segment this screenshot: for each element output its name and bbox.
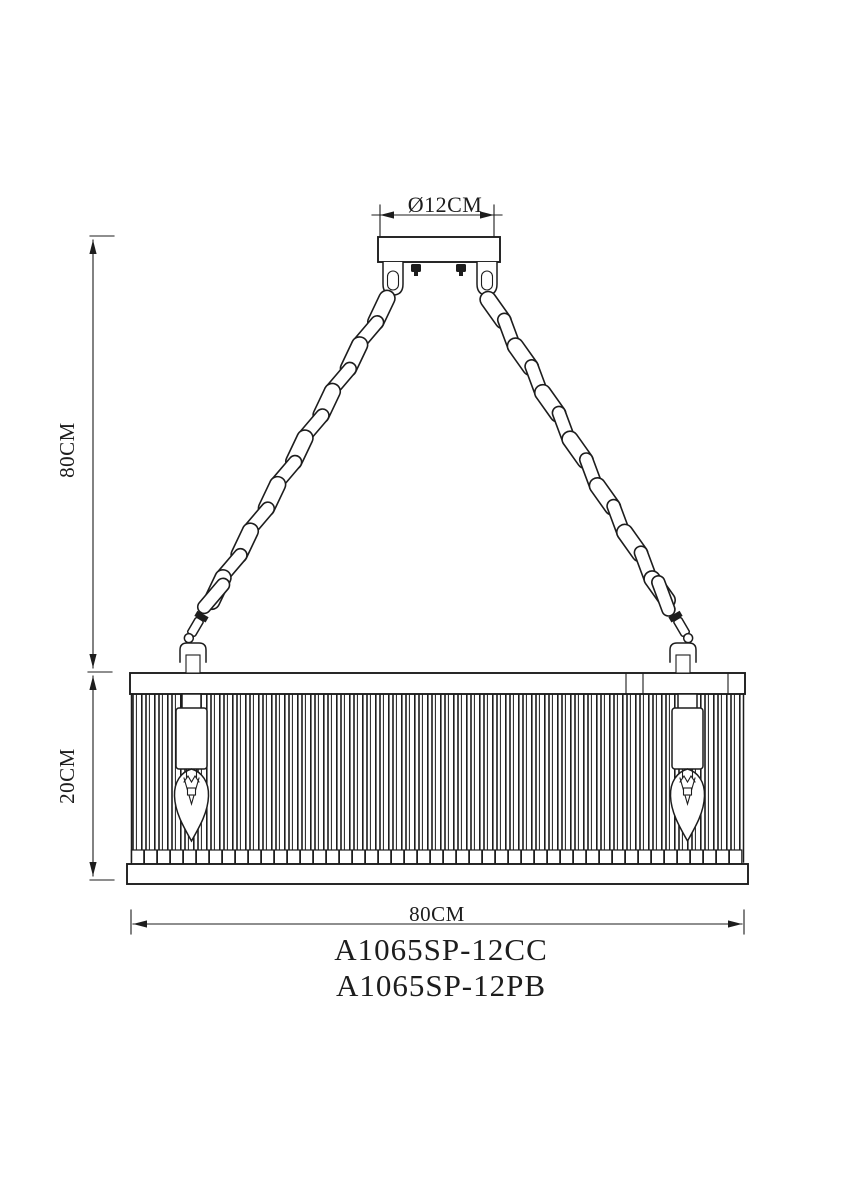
arrowhead [380,211,394,218]
slat-foot [222,850,234,864]
slat-foot [716,850,728,864]
slat-foot [469,850,481,864]
slat-foot [417,850,429,864]
chain-right [477,288,693,642]
slat-foot [170,850,182,864]
shade-width-label: 80CM [409,902,465,926]
slat-foot [482,850,494,864]
slat-foot [326,850,338,864]
slat-foot [612,850,624,864]
slat-foot [274,850,286,864]
slat-foot [521,850,533,864]
slat-foot [729,850,741,864]
chain-left [184,288,397,643]
arrowhead [89,240,96,254]
slat-foot [196,850,208,864]
slat-foot [209,850,221,864]
slat-foot [235,850,247,864]
slat-foot [573,850,585,864]
slat-foot [651,850,663,864]
screw-icon [411,264,421,276]
slat-foot [404,850,416,864]
slat-foot [703,850,715,864]
dimension-canopy-diameter: Ø12CM [372,192,502,237]
slat-foot [378,850,390,864]
slat-foot [391,850,403,864]
slat-foot [586,850,598,864]
slat-foot [352,850,364,864]
slat-foot [339,850,351,864]
lamp-socket [176,708,207,769]
screw-icon [456,264,466,276]
slat-foot [443,850,455,864]
arrowhead [133,920,147,927]
slat-foot [131,850,143,864]
bulb-assembly [670,694,704,841]
slat-foot [313,850,325,864]
bulb-assembly [174,694,208,841]
shade-height-label: 20CM [55,748,79,804]
slat-foot [261,850,273,864]
canopy-hanger [477,262,497,295]
slat-foot [599,850,611,864]
slat-foot [144,850,156,864]
slat-foot [560,850,572,864]
slat-foot [534,850,546,864]
slat-foot [508,850,520,864]
slat-foot [677,850,689,864]
dimension-shade-height: 20CM [55,672,114,880]
dimension-hang-height: 80CM [55,236,114,668]
slat-foot [157,850,169,864]
slat-foot [638,850,650,864]
arrowhead [89,654,96,668]
bulb-filament [188,788,196,795]
slat-foot [547,850,559,864]
model-number-line-1: A1065SP-12CC [334,932,548,967]
chandelier-dimension-drawing: Ø12CM 80CM 20CM [0,0,849,1200]
model-number-line-2: A1065SP-12PB [336,968,546,1003]
slat-foot [300,850,312,864]
slat-foot [430,850,442,864]
arrowhead [728,920,742,927]
canopy-plate [378,237,500,262]
slat-foot [183,850,195,864]
ceiling-canopy [378,237,500,295]
slat-foot [495,850,507,864]
shade-top-rim [130,673,745,694]
slat-foot [690,850,702,864]
shade-bottom-rim [127,864,748,884]
dimension-shade-width: 80CM [131,902,744,934]
slat-foot [456,850,468,864]
chain-mount-bracket [670,643,696,673]
hang-height-label: 80CM [55,422,79,478]
canopy-diameter-label: Ø12CM [408,192,483,217]
arrowhead [89,676,96,690]
model-numbers: A1065SP-12CC A1065SP-12PB [334,932,548,1003]
connector-hook [184,634,193,643]
slat-foot [625,850,637,864]
lamp-shade [127,643,748,884]
slat-foot [365,850,377,864]
slat-foot [287,850,299,864]
glass-rod-slats [131,694,741,864]
chain-mount-bracket [180,643,206,673]
slat-foot [664,850,676,864]
slat-foot [248,850,260,864]
arrowhead [89,862,96,876]
connector-hook [684,634,693,643]
